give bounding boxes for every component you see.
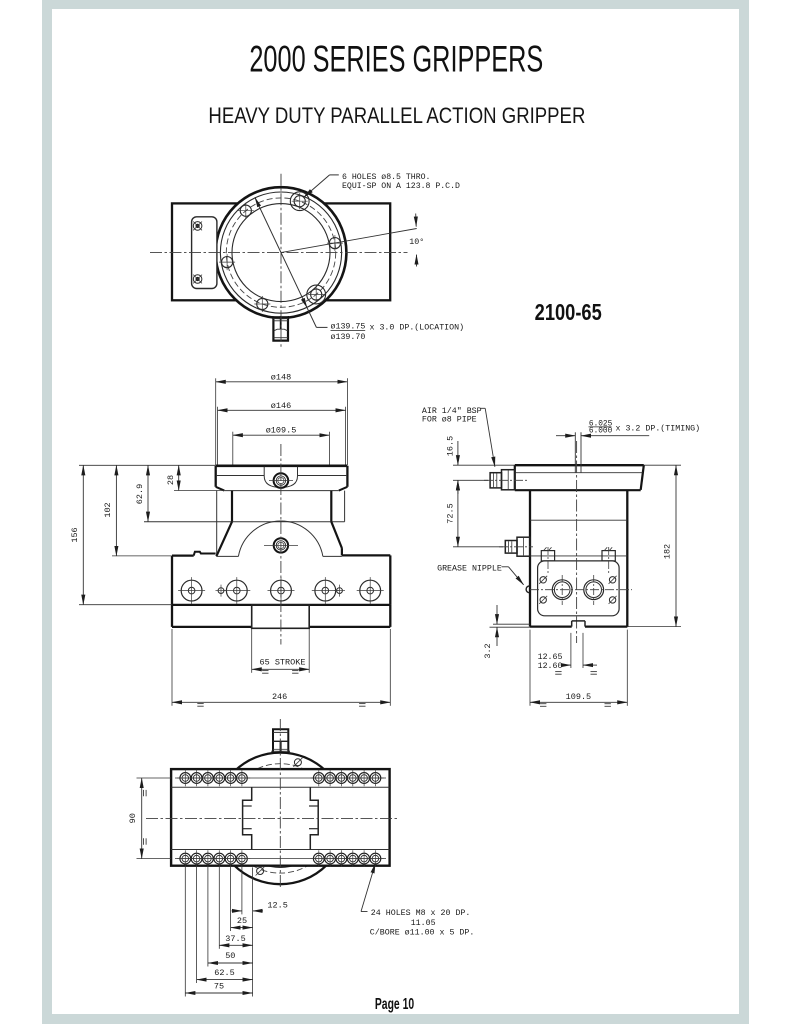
svg-text:37.5: 37.5	[225, 934, 245, 944]
svg-text:24 HOLES M8 x 20 DP.: 24 HOLES M8 x 20 DP.	[371, 909, 471, 918]
svg-text:62.5: 62.5	[214, 968, 234, 978]
svg-text:EQUI-SP ON A 123.8 P.C.D: EQUI-SP ON A 123.8 P.C.D	[342, 182, 460, 191]
svg-text:109.5: 109.5	[566, 692, 592, 702]
svg-text:65 STROKE: 65 STROKE	[260, 658, 306, 668]
svg-text:ø148: ø148	[271, 372, 291, 382]
svg-text:AIR 1/4" BSP: AIR 1/4" BSP	[422, 406, 482, 416]
svg-text:16.5: 16.5	[445, 436, 455, 456]
svg-text:x 3.0 DP.(LOCATION): x 3.0 DP.(LOCATION)	[370, 323, 465, 333]
svg-text:HEAVY DUTY PARALLEL ACTION GRI: HEAVY DUTY PARALLEL ACTION GRIPPER	[208, 105, 585, 129]
svg-text:ø109.5: ø109.5	[266, 426, 297, 436]
svg-text:ø139.70: ø139.70	[331, 333, 366, 342]
svg-text:FOR ø8 PIPE: FOR ø8 PIPE	[422, 416, 477, 425]
svg-text:28: 28	[166, 475, 176, 485]
svg-text:GREASE NIPPLE: GREASE NIPPLE	[437, 564, 502, 573]
svg-text:156: 156	[70, 527, 80, 542]
svg-text:12.65: 12.65	[538, 653, 563, 662]
svg-text:10°: 10°	[409, 238, 424, 247]
svg-text:25: 25	[237, 916, 247, 926]
svg-text:3.2: 3.2	[483, 643, 493, 658]
svg-text:90: 90	[128, 813, 138, 823]
svg-text:11.05: 11.05	[411, 919, 436, 928]
svg-text:102: 102	[103, 502, 113, 517]
svg-text:12.60: 12.60	[538, 662, 563, 671]
svg-text:12.5: 12.5	[267, 901, 287, 911]
svg-text:C/BORE ø11.00 x 5 DP.: C/BORE ø11.00 x 5 DP.	[370, 927, 475, 937]
svg-text:x 3.2 DP.(TIMING): x 3.2 DP.(TIMING)	[616, 423, 701, 433]
svg-text:75: 75	[214, 982, 224, 992]
svg-text:ø146: ø146	[271, 401, 291, 411]
svg-text:246: 246	[272, 692, 287, 702]
svg-text:Page 10: Page 10	[375, 995, 414, 1013]
svg-text:72.5: 72.5	[445, 503, 455, 523]
svg-text:182: 182	[663, 544, 673, 559]
svg-text:2100-65: 2100-65	[535, 300, 602, 325]
svg-text:2000 SERIES GRIPPERS: 2000 SERIES GRIPPERS	[249, 37, 543, 79]
svg-text:50: 50	[225, 951, 235, 961]
svg-text:6.000: 6.000	[589, 428, 613, 436]
svg-text:62.9: 62.9	[135, 484, 145, 504]
